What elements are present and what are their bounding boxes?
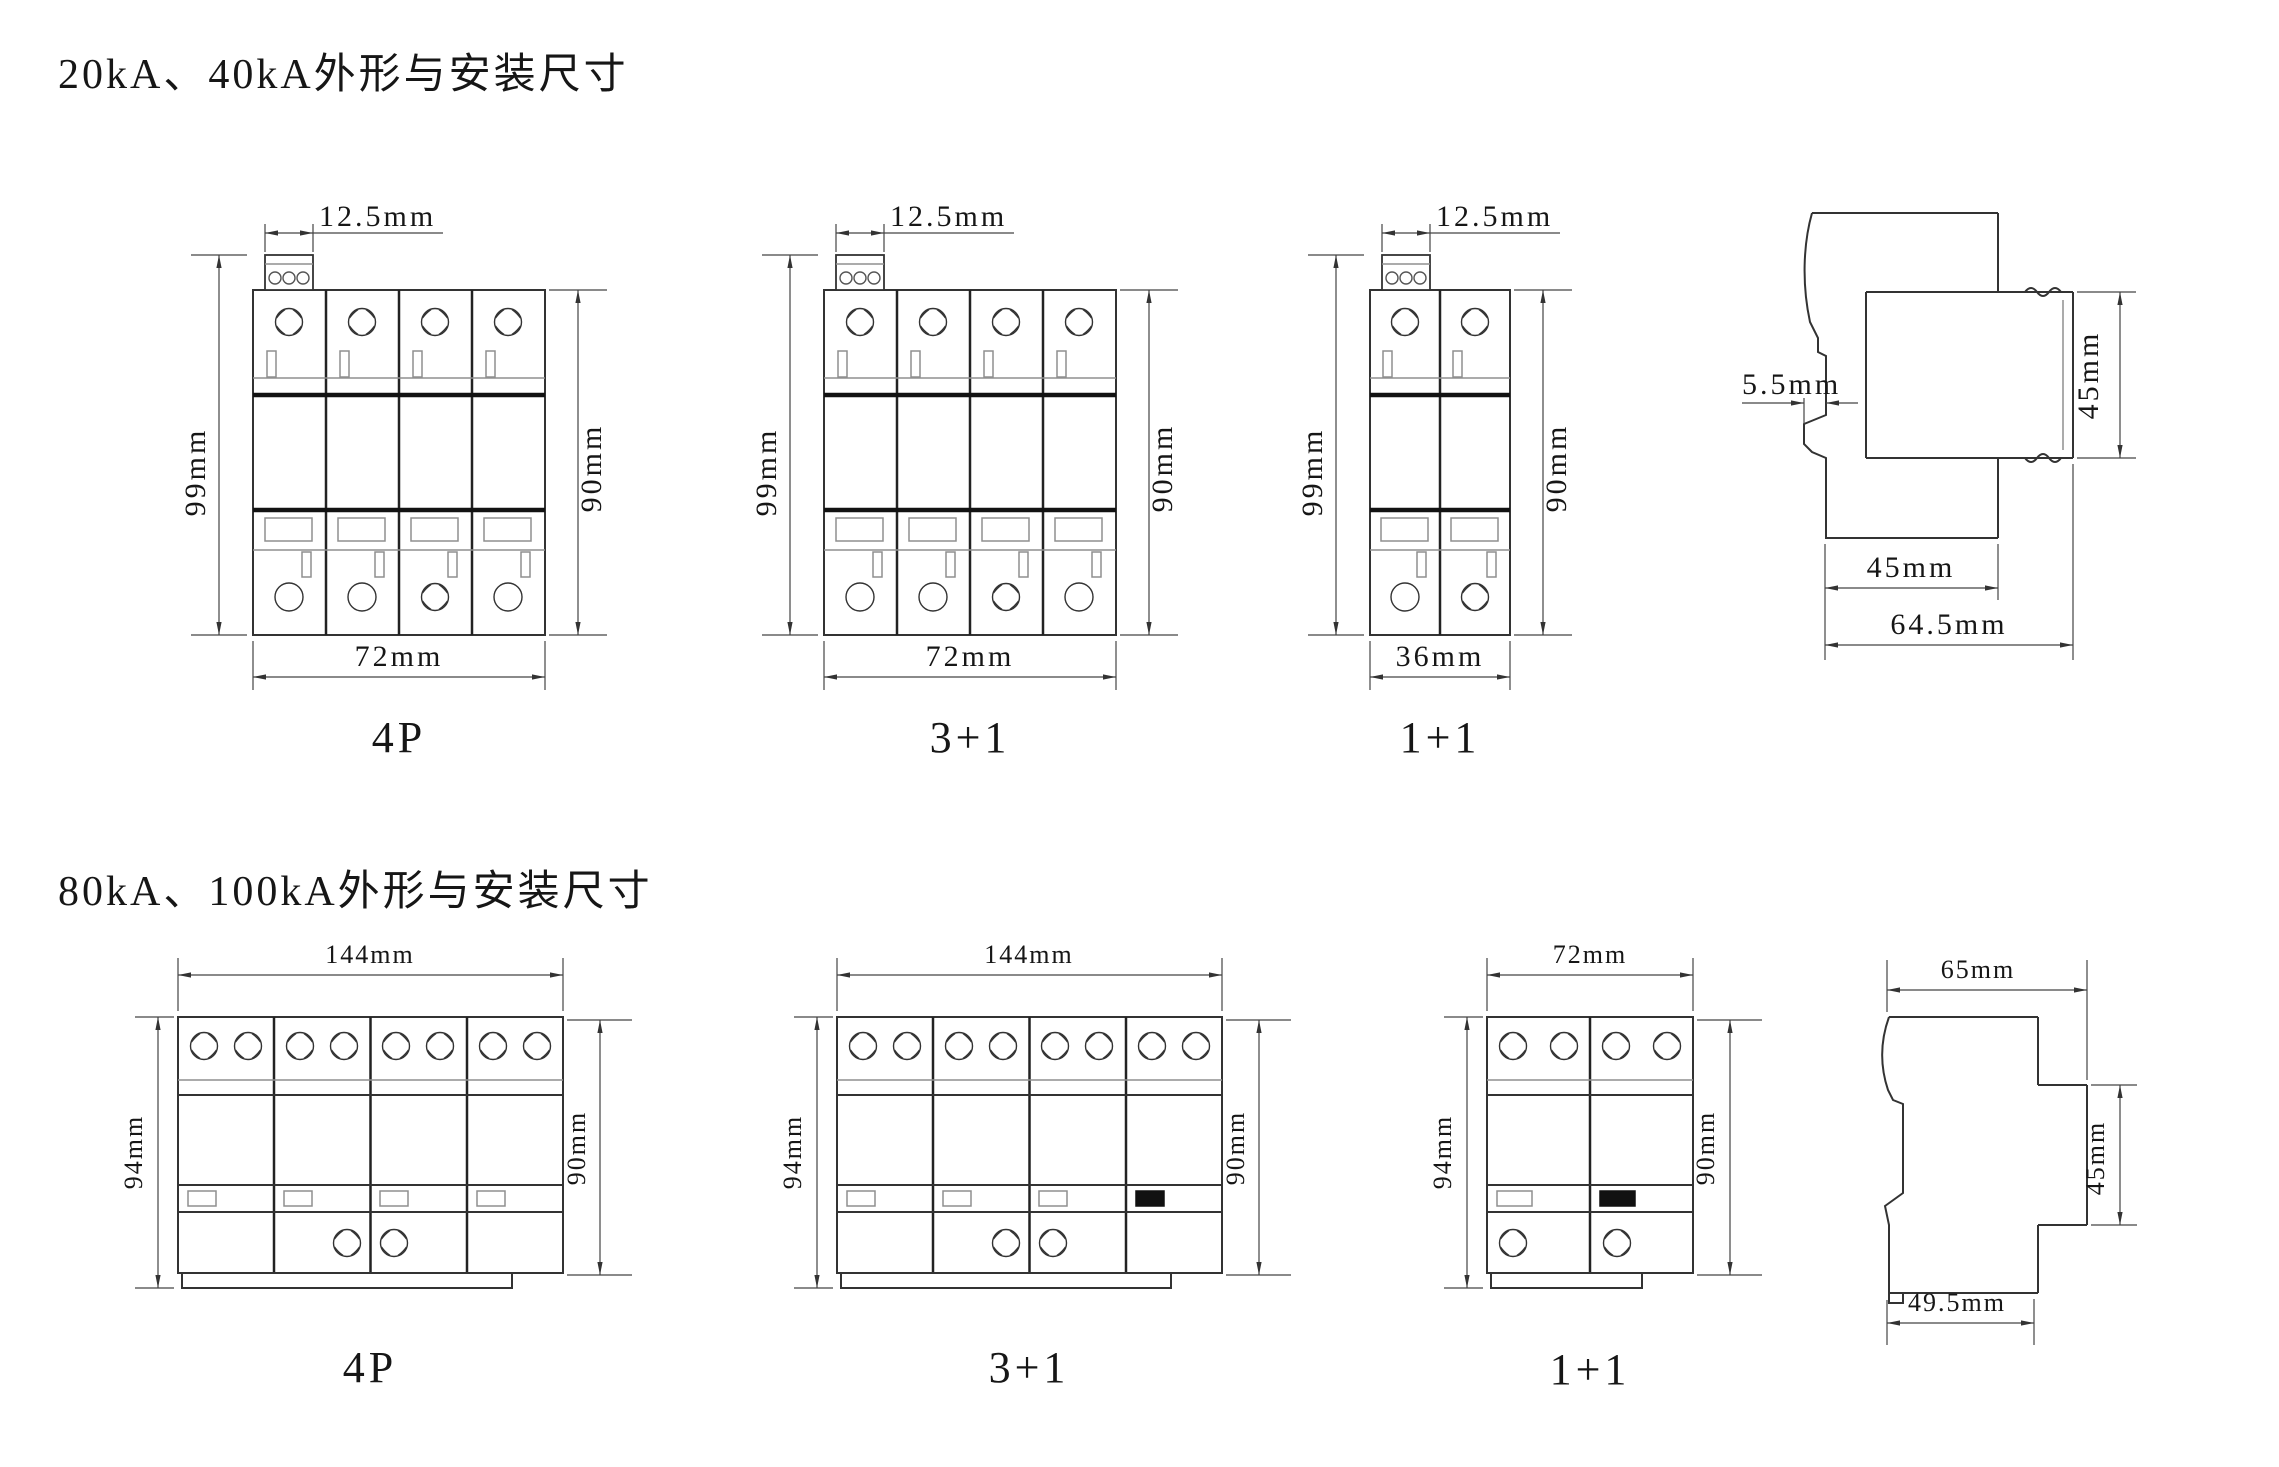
dim-label: 90mm: [1540, 424, 1573, 513]
indicator-window-dark: [1600, 1191, 1635, 1206]
section-title: 20kA、40kA外形与安装尺寸: [58, 52, 629, 98]
dim-height-body: 90mm: [549, 290, 608, 635]
dim-label: 99mm: [750, 428, 783, 517]
front-view-3plus1-small: 12.5mm 99mm 90mm 72mm 3+1: [750, 200, 1179, 762]
view-label: 1+1: [1400, 713, 1481, 762]
dim-pitch: 12.5mm: [265, 200, 443, 252]
dim-label: 45mm: [2072, 331, 2105, 420]
dim-pitch: 12.5mm: [1382, 200, 1560, 252]
dim-height-outer: 99mm: [750, 255, 818, 635]
front-view-1plus1-small: 12.5mm 99mm 90mm 36mm 1+1: [1296, 200, 1573, 762]
dim-height-body: 90mm: [1691, 1020, 1762, 1275]
dim-label: 90mm: [575, 424, 608, 513]
dim-label: 94mm: [119, 1115, 148, 1189]
dim-label: 99mm: [179, 428, 212, 517]
dim-height-outer: 99mm: [179, 255, 247, 635]
dim-label: 45mm: [2081, 1121, 2110, 1195]
dim-label: 90mm: [1221, 1111, 1250, 1185]
view-label: 4P: [343, 1343, 397, 1392]
dim-front-height: 45mm: [2072, 292, 2136, 458]
base-strip: [1491, 1273, 1642, 1288]
dim-label: 45mm: [1867, 551, 1956, 584]
section-80ka-100ka: 80kA、100kA外形与安装尺寸: [58, 869, 2137, 1394]
indicator-window-dark: [1136, 1191, 1164, 1206]
side-view-small: 5.5mm 45mm 45mm 64.5mm: [1742, 213, 2136, 660]
dimension-drawing: 20kA、40kA外形与安装尺寸: [0, 0, 2279, 1467]
dim-label: 144mm: [325, 940, 414, 969]
dim-pitch: 12.5mm: [836, 200, 1014, 252]
section-title: 80kA、100kA外形与安装尺寸: [58, 869, 653, 915]
terminal-block: [1382, 255, 1430, 290]
dim-height-body: 90mm: [562, 1020, 632, 1275]
dim-height-body: 90mm: [1514, 290, 1573, 635]
terminal-block: [836, 255, 884, 290]
dim-width: 72mm: [253, 640, 545, 690]
dim-height-outer: 99mm: [1296, 255, 1364, 635]
dim-label: 99mm: [1296, 428, 1329, 517]
terminal-block: [265, 255, 313, 290]
dim-label: 94mm: [1428, 1115, 1457, 1189]
view-label: 3+1: [930, 713, 1011, 762]
dim-label: 144mm: [984, 940, 1073, 969]
dim-width: 72mm: [1487, 940, 1693, 1011]
base-strip: [182, 1273, 512, 1288]
view-label: 3+1: [989, 1343, 1070, 1392]
dim-label: 36mm: [1396, 640, 1485, 673]
front-view-3plus1-large: 144mm 94mm 90mm 3+1: [778, 940, 1291, 1392]
dim-label: 12.5mm: [1436, 200, 1553, 233]
dim-label: 94mm: [778, 1115, 807, 1189]
drawing-page: 20kA、40kA外形与安装尺寸: [0, 0, 2279, 1467]
section-20ka-40ka: 20kA、40kA外形与安装尺寸: [58, 52, 2136, 762]
dim-label: 90mm: [562, 1111, 591, 1185]
front-view-4p-large: 144mm 94mm 90mm 4P: [119, 940, 632, 1392]
dim-height-outer: 94mm: [1428, 1017, 1483, 1288]
foot-notch: [1889, 1293, 1903, 1303]
dim-base-depth: 49.5mm: [1887, 1288, 2034, 1345]
dim-front-height: 45mm: [2081, 1085, 2137, 1225]
dim-label: 90mm: [1146, 424, 1179, 513]
dim-width: 36mm: [1370, 640, 1510, 690]
dim-height-outer: 94mm: [778, 1017, 833, 1288]
dim-label: 49.5mm: [1908, 1288, 2006, 1317]
dim-label: 72mm: [926, 640, 1015, 673]
base-strip: [841, 1273, 1171, 1288]
dim-mount-depth: 45mm: [1825, 544, 1998, 660]
dim-label: 64.5mm: [1890, 608, 2007, 641]
dim-label: 5.5mm: [1742, 368, 1841, 401]
dim-label: 12.5mm: [319, 200, 436, 233]
dim-label: 72mm: [1553, 940, 1627, 969]
front-view-4p-small: 12.5mm 99mm 90mm 72mm 4P: [179, 200, 608, 762]
dim-label: 12.5mm: [890, 200, 1007, 233]
view-label: 1+1: [1550, 1345, 1631, 1394]
dim-width: 72mm: [824, 640, 1116, 690]
dim-width: 144mm: [837, 940, 1222, 1011]
dim-label: 90mm: [1691, 1111, 1720, 1185]
dim-width: 144mm: [178, 940, 563, 1011]
view-label: 4P: [372, 713, 426, 762]
dim-height-body: 90mm: [1120, 290, 1179, 635]
front-view-1plus1-large: 72mm 94mm 90mm 1+1: [1428, 940, 1762, 1394]
dim-label: 72mm: [355, 640, 444, 673]
side-view-large: 65mm 45mm 49.5mm: [1882, 955, 2137, 1345]
dim-rail-offset: 5.5mm: [1742, 368, 1858, 424]
dim-height-outer: 94mm: [119, 1017, 174, 1288]
dim-label: 65mm: [1941, 955, 2015, 984]
dim-height-body: 90mm: [1221, 1020, 1291, 1275]
din-clip-profile: [1882, 1017, 1903, 1293]
